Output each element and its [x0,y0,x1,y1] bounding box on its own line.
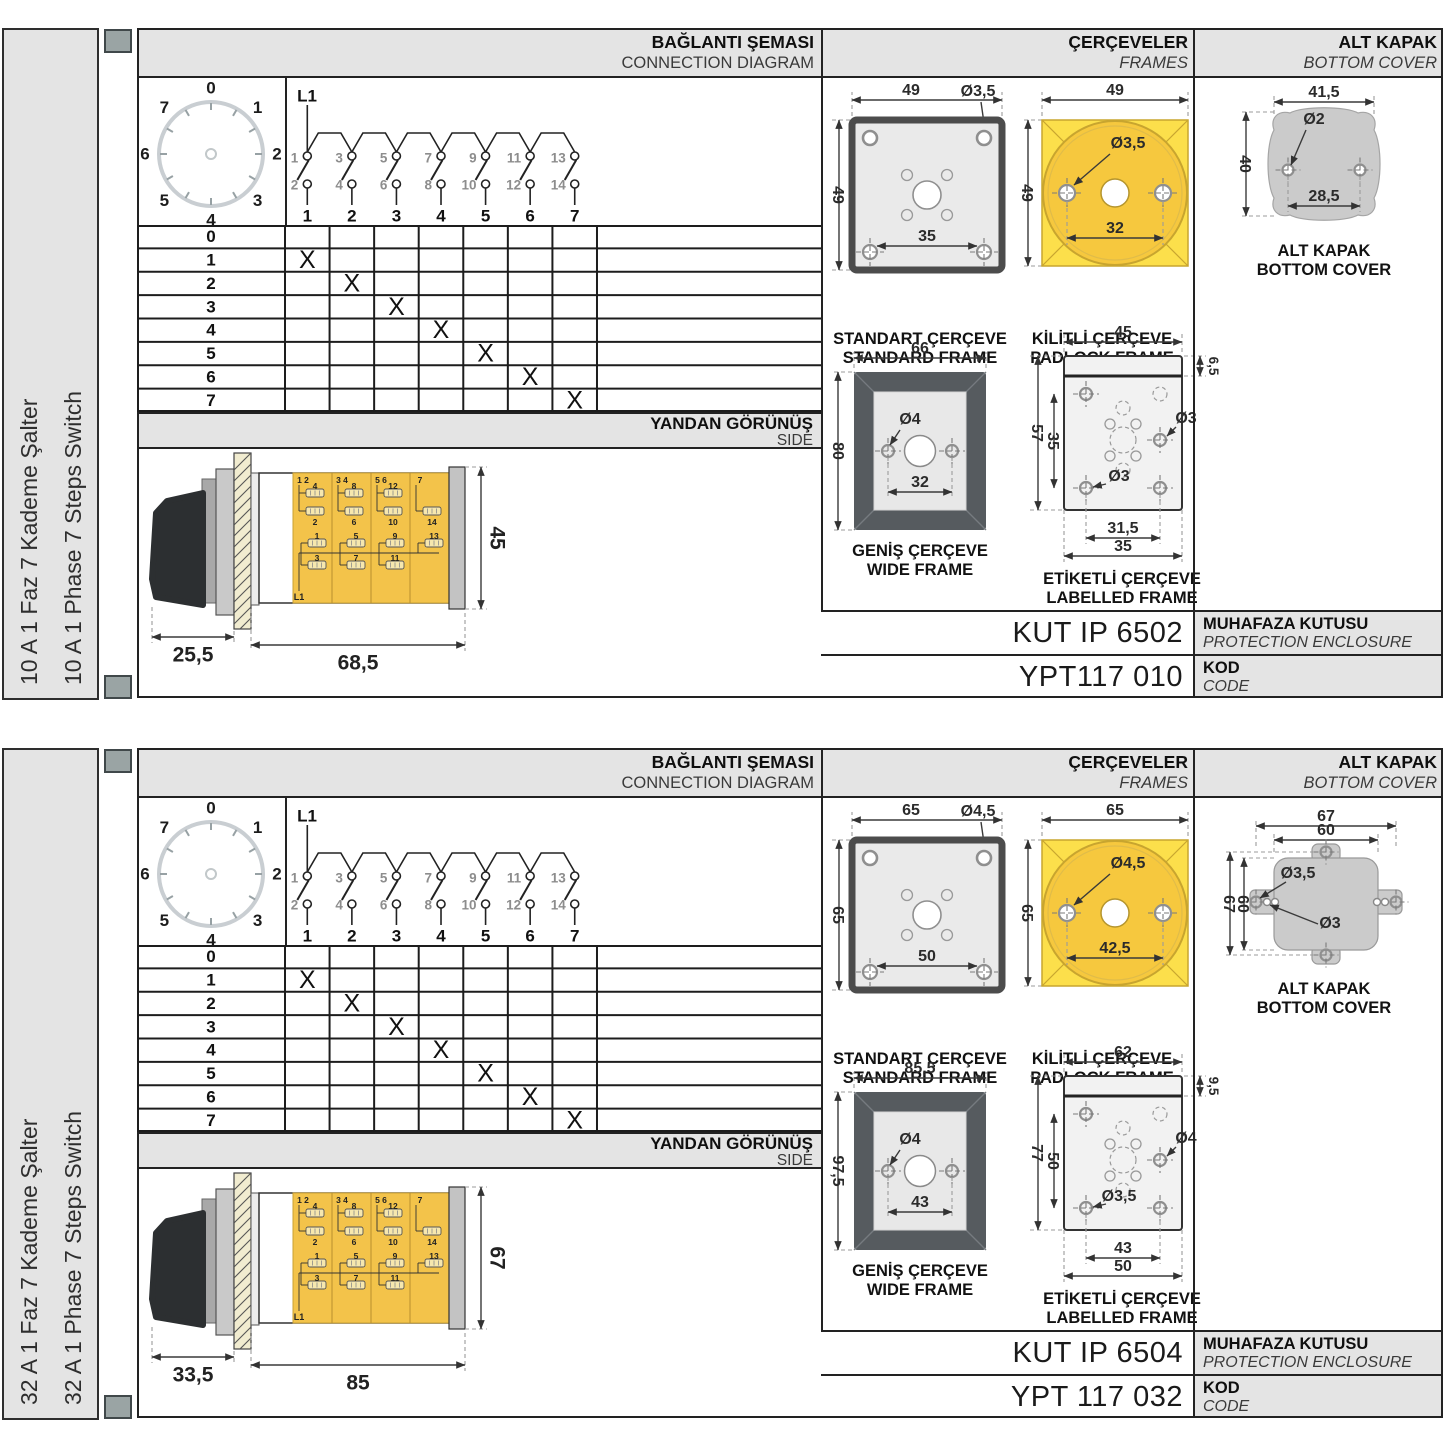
terminal-number: 7 [424,871,432,886]
step-row-label: 4 [206,321,216,340]
dial-position-2: 2 [272,865,281,884]
dial-position-3: 3 [253,191,262,210]
gutter-square-bottom [104,675,132,699]
contact-column-number: 5 [481,207,490,226]
svg-text:60: 60 [1234,895,1251,913]
terminal-label: 3 [315,553,320,563]
step-mark: X [388,1013,405,1041]
terminal-number: 3 [335,151,343,166]
product-section-10a: 10 A 1 Faz 7 Kademe Şalter 10 A 1 Phase … [0,28,1445,700]
contact-column-number: 4 [436,927,446,946]
contact-column-number: 6 [525,207,534,226]
order-code-value: YPT 117 032 [1011,1381,1193,1413]
product-label-english: 32 A 1 Phase 7 Steps Switch [60,1111,87,1405]
svg-text:Ø2: Ø2 [1303,111,1324,128]
contact-column-number: 1 [303,927,312,946]
contact-column-number: 7 [570,207,579,226]
module-pair-label: 1 2 [297,475,309,485]
wide-frame-drawing: 85,5 97,5 Ø4 43 [826,1064,1014,1258]
side-view-band: YANDAN GÖRÜNÜŞ SIDE [139,412,821,449]
step-row-label: 3 [206,297,215,316]
svg-text:Ø3: Ø3 [1108,468,1129,485]
svg-text:50: 50 [918,948,936,965]
terminal-number: 7 [424,151,432,166]
order-code-row: YPT 117 032 [821,1374,1193,1418]
terminal-label: 14 [427,517,437,527]
dim-front-depth: 33,5 [173,1364,214,1387]
dim-body-length: 68,5 [338,652,379,675]
enclosure-code-row: KUT IP 6504 [821,1330,1193,1374]
wide-frame-drawing: 66 80 Ø4 32 [826,344,1014,538]
dial-position-3: 3 [253,911,262,930]
terminal-number: 9 [469,151,477,166]
step-mark: X [566,386,583,414]
terminal-number: 3 [335,871,343,886]
module-pair-label: 3 4 [336,475,348,485]
step-mark: X [433,316,450,344]
zone-divider-frames [821,748,823,1418]
padlock-frame-drawing: 49 49 Ø3,5 32 [1014,80,1192,328]
step-mark: X [522,363,539,391]
terminal-number: 12 [506,178,521,193]
terminal-label: 11 [391,1273,400,1283]
svg-text:97,5: 97,5 [829,1155,846,1186]
svg-text:57: 57 [1028,424,1045,442]
caption-wide-frame: GENİŞ ÇERÇEVE WIDE FRAME [826,542,1014,579]
switch-side-view-drawing: 1 242133 486575 6121091171413L133,58567 [137,1169,821,1418]
side-view-band: YANDAN GÖRÜNÜŞ SIDE [139,1132,821,1169]
step-row-label: 6 [206,1087,215,1106]
step-row-label: 0 [206,227,215,246]
padlock-frame-drawing: 65 65 Ø4,5 42,5 [1014,800,1192,1048]
contact-sequence-diagram: L112134256378491051112613147 [287,798,821,945]
svg-text:50: 50 [1044,1152,1061,1170]
zone-divider-cover [1193,28,1195,610]
step-row-label: 4 [206,1041,216,1060]
terminal-label: 9 [393,1251,398,1261]
contact-column-number: 6 [525,927,534,946]
contact-column-number: 2 [347,207,356,226]
svg-text:66: 66 [911,340,929,357]
terminal-label: 4 [313,1201,318,1211]
order-code-row: YPT117 010 [821,654,1193,698]
svg-text:65: 65 [902,802,920,819]
svg-text:28,5: 28,5 [1308,188,1339,205]
side-view-shapes: 1 242133 486575 6121091171413L1 [152,1173,465,1377]
svg-text:62: 62 [1114,1044,1132,1061]
terminal-label: 1 [315,1251,320,1261]
terminal-number: 8 [424,178,432,193]
svg-text:43: 43 [911,1194,929,1211]
terminal-label: 2 [313,517,318,527]
step-mark: X [522,1083,539,1111]
header-bottom-cover: ALT KAPAK BOTTOM COVER [1200,31,1443,73]
dim-standard-pitch: 35 [918,228,936,245]
terminal-number: 9 [469,871,477,886]
terminal-number: 2 [291,898,299,913]
contact-column-number: 4 [436,207,446,226]
caption-bottom-cover: ALT KAPAK BOTTOM COVER [1206,242,1442,279]
step-row-label: 5 [206,344,215,363]
terminal-number: 2 [291,178,299,193]
caption-bottom-cover: ALT KAPAK BOTTOM COVER [1206,980,1442,1017]
enclosure-code-value: KUT IP 6502 [1013,617,1193,649]
header-bottom-cover: ALT KAPAK BOTTOM COVER [1200,751,1443,793]
step-row-label: 6 [206,367,215,386]
terminal-label: 12 [388,1201,398,1211]
dial-position-6: 6 [140,865,149,884]
dial-position-1: 1 [253,98,262,117]
dim-body-height: 67 [486,1246,509,1269]
code-label-cell: KOD CODE [1193,654,1443,698]
svg-text:Ø4: Ø4 [899,411,920,428]
module-pair-label: 5 6 [375,1195,387,1205]
switching-step-table: 01234567XXXXXXX [137,945,821,1132]
step-row-label: 1 [206,971,215,990]
dim-body-length: 85 [346,1372,370,1395]
step-mark: X [299,966,316,994]
contact-column-number: 2 [347,927,356,946]
bottom-cover-drawing: 41,5 Ø2 40 28,5 [1206,86,1442,238]
svg-text:80: 80 [829,442,846,460]
line-label: L1 [297,807,317,826]
terminal-number: 10 [462,178,477,193]
terminal-number: 1 [291,871,299,886]
terminal-label: 2 [313,1237,318,1247]
enclosure-label-cell: MUHAFAZA KUTUSU PROTECTION ENCLOSURE [1193,610,1443,654]
svg-text:Ø4: Ø4 [899,1131,920,1148]
step-mark: X [344,269,361,297]
svg-text:50: 50 [1114,1258,1132,1275]
header-connection-diagram: BAĞLANTI ŞEMASI CONNECTION DIAGRAM [400,31,820,73]
dial-position-5: 5 [160,191,169,210]
step-row-label: 7 [206,1111,215,1130]
step-mark: X [388,293,405,321]
svg-text:Ø4,5: Ø4,5 [961,803,996,820]
terminal-label: 6 [352,517,357,527]
svg-text:65: 65 [1018,904,1035,922]
terminal-number: 4 [335,178,343,193]
contact-column-number: 3 [392,207,401,226]
dial-position-6: 6 [140,145,149,164]
terminal-label: 6 [352,1237,357,1247]
svg-text:Ø3: Ø3 [1319,915,1340,932]
step-mark: X [566,1106,583,1134]
step-mark: X [477,1060,494,1088]
rotary-dial-diagram: 01234567 [137,798,285,945]
dial-position-0: 0 [206,799,215,818]
svg-text:Ø3,5: Ø3,5 [1281,865,1316,882]
terminal-number: 1 [291,151,299,166]
svg-text:41,5: 41,5 [1308,84,1339,101]
product-label-turkish: 32 A 1 Faz 7 Kademe Şalter [16,1119,43,1405]
dial-box-divider [285,78,287,225]
dial-position-7: 7 [160,98,169,117]
terminal-number: 5 [380,151,388,166]
terminal-label: 14 [427,1237,437,1247]
svg-text:42,5: 42,5 [1099,940,1130,957]
product-side-strip: 10 A 1 Faz 7 Kademe Şalter 10 A 1 Phase … [2,28,99,700]
terminal-label: 8 [352,1201,357,1211]
svg-text:35: 35 [1044,432,1061,450]
dial-position-5: 5 [160,911,169,930]
contact-column-number: 1 [303,207,312,226]
terminal-label: 7 [354,553,359,563]
svg-text:85,5: 85,5 [904,1060,935,1077]
enclosure-label-cell: MUHAFAZA KUTUSU PROTECTION ENCLOSURE [1193,1330,1443,1374]
caption-labelled-frame: ETİKETLİ ÇERÇEVE LABELLED FRAME [1026,570,1218,607]
zone-divider-frames [821,28,823,698]
side-view-shapes: 1 242133 486575 6121091171413L1 [152,453,465,657]
terminal-number: 13 [551,151,567,166]
svg-text:40: 40 [1236,155,1253,173]
svg-text:Ø3,5: Ø3,5 [1102,1188,1137,1205]
terminal-label: 5 [354,531,359,541]
header-frames: ÇERÇEVELER FRAMES [840,31,1194,73]
gutter-square-top [104,29,132,53]
dial-position-7: 7 [160,818,169,837]
bottom-cover-drawing: 67 60 67 60 Ø3,5 Ø3 [1206,804,1442,976]
step-row-label: 1 [206,251,215,270]
svg-text:6,5: 6,5 [1206,357,1221,376]
line-label: L1 [297,87,317,106]
gutter-square-top [104,749,132,773]
terminal-number: 14 [551,178,567,193]
dim-front-depth: 25,5 [173,644,214,667]
terminal-label: 5 [354,1251,359,1261]
terminal-label: 12 [388,481,398,491]
enclosure-code-value: KUT IP 6504 [1013,1337,1193,1369]
terminal-label: 11 [391,553,400,563]
step-mark: X [477,340,494,368]
terminal-label: 13 [429,531,439,541]
step-row-label: 3 [206,1017,215,1036]
product-section-32a: 32 A 1 Faz 7 Kademe Şalter 32 A 1 Phase … [0,748,1445,1420]
dial-position-0: 0 [206,79,215,98]
svg-text:31,5: 31,5 [1107,520,1138,537]
module-pair-label: 1 2 [297,1195,309,1205]
dim-standard-hole: Ø3,5 [961,83,996,100]
terminal-label: 10 [388,1237,398,1247]
caption-labelled-frame: ETİKETLİ ÇERÇEVE LABELLED FRAME [1026,1290,1218,1327]
contact-column-number: 7 [570,927,579,946]
step-row-label: 2 [206,994,215,1013]
terminal-label: 10 [388,517,398,527]
contact-column-number: 5 [481,927,490,946]
product-label-turkish: 10 A 1 Faz 7 Kademe Şalter [16,399,43,685]
dim-body-height: 45 [486,526,509,550]
contact-column-number: 3 [392,927,401,946]
dim-standard-height: 49 [829,186,846,204]
terminal-number: 12 [506,898,521,913]
zone-divider-cover [1193,748,1195,1330]
svg-text:Ø4,5: Ø4,5 [1111,855,1146,872]
terminal-number: 14 [551,898,567,913]
svg-text:60: 60 [1317,822,1335,839]
header-frames: ÇERÇEVELER FRAMES [840,751,1194,793]
dial-position-1: 1 [253,818,262,837]
gutter-square-bottom [104,1395,132,1419]
terminal-label: 13 [429,1251,439,1261]
standard-frame-drawing: 65 Ø4,5 65 50 [826,800,1014,1048]
terminal-number: 11 [507,151,522,166]
terminal-label: 8 [352,481,357,491]
switching-step-table: 01234567XXXXXXX [137,225,821,412]
svg-text:32: 32 [1106,220,1124,237]
terminal-label: 1 [315,531,320,541]
terminal-number: 4 [335,898,343,913]
standard-frame-drawing: 49 Ø3,5 49 35 [826,80,1014,328]
svg-text:77: 77 [1028,1144,1045,1162]
terminal-number: 5 [380,871,388,886]
svg-text:49: 49 [1018,184,1035,202]
dial-position-2: 2 [272,145,281,164]
terminal-number: 6 [380,898,388,913]
side-line-label: L1 [294,1312,305,1322]
svg-text:43: 43 [1114,1240,1132,1257]
step-mark: X [433,1036,450,1064]
step-row-label: 2 [206,274,215,293]
terminal-label: 4 [313,481,318,491]
caption-wide-frame: GENİŞ ÇERÇEVE WIDE FRAME [826,1262,1014,1299]
dim-standard-width: 49 [902,82,920,99]
module-pair-label: 7 [418,1195,423,1205]
switch-side-view-drawing: 1 242133 486575 6121091171413L125,568,54… [137,449,821,698]
svg-text:65: 65 [829,906,846,924]
svg-text:Ø3,5: Ø3,5 [1111,135,1146,152]
product-side-strip: 32 A 1 Faz 7 Kademe Şalter 32 A 1 Phase … [2,748,99,1420]
step-mark: X [299,246,316,274]
terminal-label: 9 [393,531,398,541]
svg-text:32: 32 [911,474,929,491]
svg-text:35: 35 [1114,538,1132,555]
terminal-label: 3 [315,1273,320,1283]
header-connection-diagram: BAĞLANTI ŞEMASI CONNECTION DIAGRAM [400,751,820,793]
svg-text:45: 45 [1114,324,1132,341]
contact-sequence-diagram: L112134256378491051112613147 [287,78,821,225]
dial-box-divider [285,798,287,945]
enclosure-code-row: KUT IP 6502 [821,610,1193,654]
terminal-number: 8 [424,898,432,913]
terminal-number: 10 [462,898,477,913]
labelled-frame-drawing: 45 6,5 57 35 Ø3 Ø3 31,5 35 [1026,326,1218,568]
module-pair-label: 5 6 [375,475,387,485]
step-row-label: 5 [206,1064,215,1083]
code-label-cell: KOD CODE [1193,1374,1443,1418]
terminal-number: 13 [551,871,567,886]
module-pair-label: 7 [418,475,423,485]
terminal-number: 6 [380,178,388,193]
order-code-value: YPT117 010 [1019,661,1193,693]
svg-text:9,5: 9,5 [1206,1077,1221,1096]
step-mark: X [344,989,361,1017]
terminal-number: 11 [507,871,522,886]
svg-text:65: 65 [1106,802,1124,819]
labelled-frame-drawing: 62 9,5 77 50 Ø4 Ø3,5 43 50 [1026,1046,1218,1288]
side-line-label: L1 [294,592,305,602]
svg-text:49: 49 [1106,82,1124,99]
module-pair-label: 3 4 [336,1195,348,1205]
terminal-label: 7 [354,1273,359,1283]
rotary-dial-diagram: 01234567 [137,78,285,225]
product-label-english: 10 A 1 Phase 7 Steps Switch [60,391,87,685]
step-row-label: 7 [206,391,215,410]
step-row-label: 0 [206,947,215,966]
